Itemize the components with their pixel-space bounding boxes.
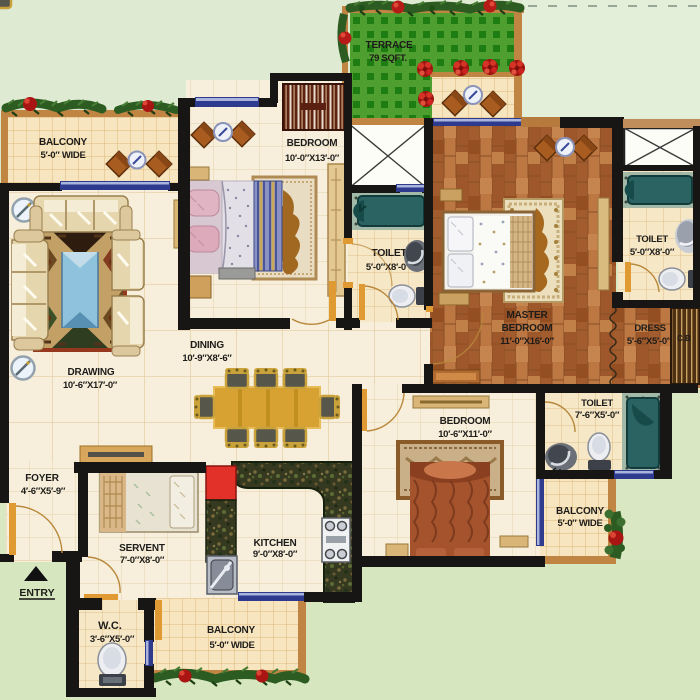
svg-text:BEDROOM: BEDROOM (440, 416, 491, 427)
svg-text:TOILET: TOILET (581, 398, 613, 409)
svg-text:10′-6″X17′-0″: 10′-6″X17′-0″ (63, 380, 118, 391)
svg-text:BALCONY: BALCONY (39, 137, 88, 148)
svg-text:DRESS: DRESS (634, 323, 665, 334)
svg-text:5′-0″X8′-0″: 5′-0″X8′-0″ (630, 247, 675, 258)
svg-text:11′-0″X16′-0″: 11′-0″X16′-0″ (500, 336, 554, 347)
svg-text:BALCONY: BALCONY (207, 625, 256, 636)
svg-text:C.B: C.B (677, 334, 691, 343)
svg-text:BEDROOM: BEDROOM (502, 323, 553, 334)
svg-text:9′-0″X8′-0″: 9′-0″X8′-0″ (253, 549, 298, 560)
svg-text:ENTRY: ENTRY (19, 587, 54, 599)
svg-text:7′-0″X8′-0″: 7′-0″X8′-0″ (120, 555, 165, 566)
svg-text:4′-6″X5′-9″: 4′-6″X5′-9″ (21, 486, 66, 497)
svg-text:KITCHEN: KITCHEN (253, 538, 296, 549)
svg-text:FOYER: FOYER (25, 473, 59, 484)
svg-text:10′-0″X13′-0″: 10′-0″X13′-0″ (285, 153, 340, 164)
svg-text:BALCONY: BALCONY (556, 506, 605, 517)
svg-text:MASTER: MASTER (506, 310, 548, 321)
svg-text:TERRACE: TERRACE (366, 40, 413, 51)
svg-text:W.C.: W.C. (98, 620, 122, 632)
svg-text:DRAWING: DRAWING (68, 367, 115, 378)
svg-text:BEDROOM: BEDROOM (287, 138, 338, 149)
svg-text:5′-0″ WIDE: 5′-0″ WIDE (40, 150, 85, 161)
svg-text:79 SQFT.: 79 SQFT. (369, 53, 407, 64)
svg-text:10′-9″X8′-6″: 10′-9″X8′-6″ (182, 353, 232, 364)
svg-text:10′-6″X11′-0″: 10′-6″X11′-0″ (438, 429, 492, 440)
svg-text:5′-0″ WIDE: 5′-0″ WIDE (557, 518, 602, 529)
svg-text:5′-0″ WIDE: 5′-0″ WIDE (209, 640, 254, 651)
svg-text:DINING: DINING (190, 340, 224, 351)
svg-text:TOILET: TOILET (636, 234, 668, 245)
svg-text:5′-6″X5′-0″: 5′-6″X5′-0″ (627, 336, 672, 347)
svg-text:7′-6″X5′-0″: 7′-6″X5′-0″ (575, 410, 620, 421)
svg-text:SERVENT: SERVENT (119, 543, 165, 554)
